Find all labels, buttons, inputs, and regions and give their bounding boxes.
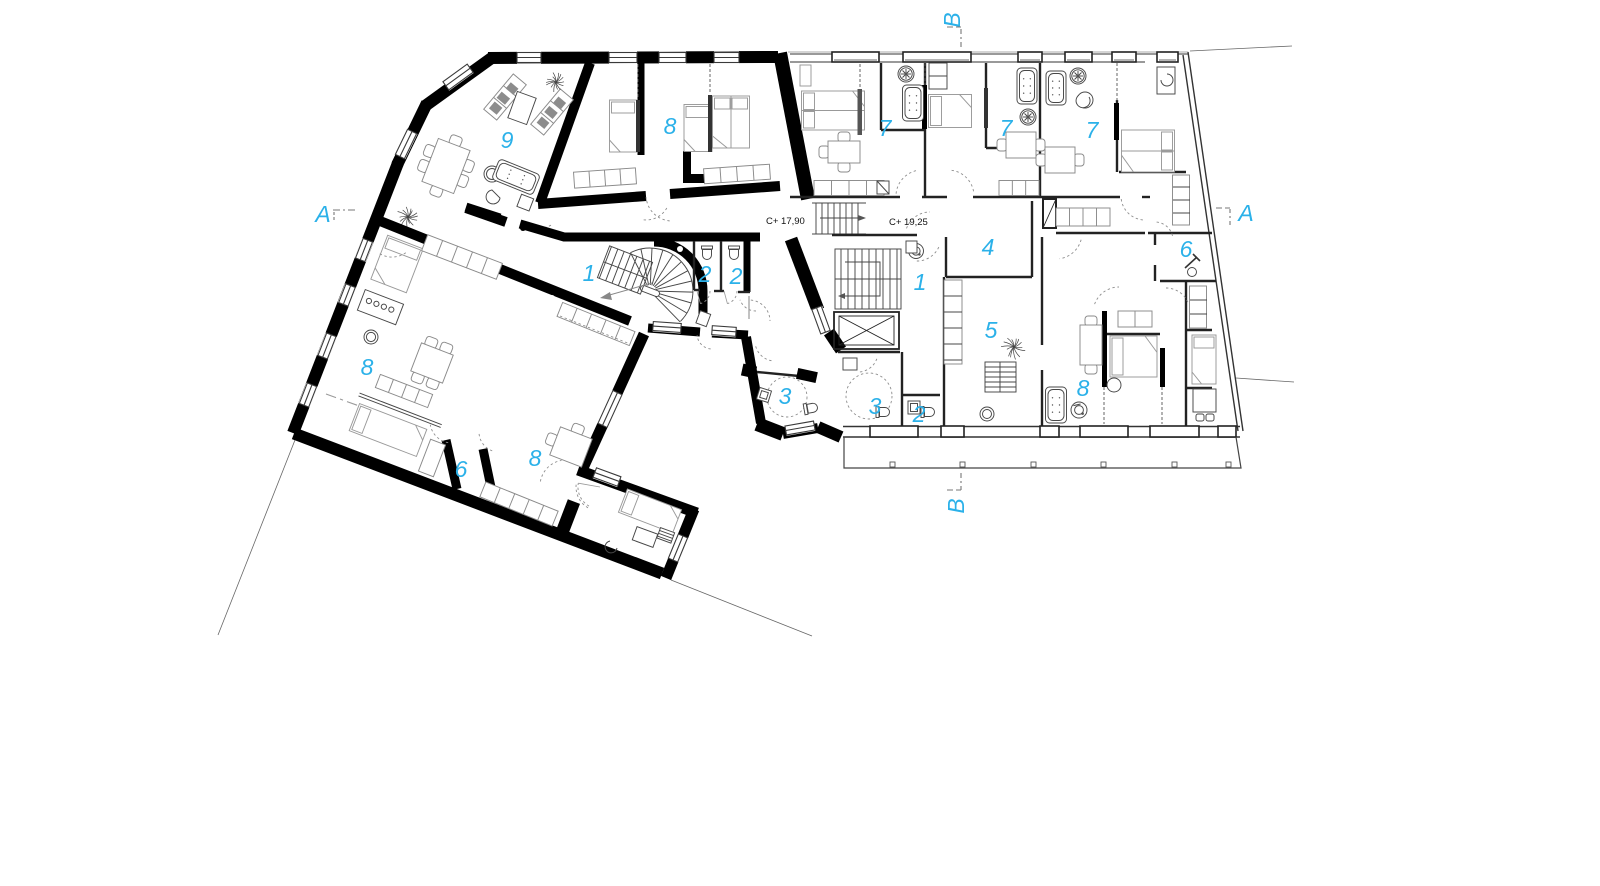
svg-text:1: 1 xyxy=(914,269,927,295)
svg-text:C+ 19,25: C+ 19,25 xyxy=(889,217,928,228)
svg-text:C+ 17,90: C+ 17,90 xyxy=(766,216,805,227)
svg-text:6: 6 xyxy=(455,456,468,482)
svg-text:1: 1 xyxy=(583,260,596,286)
svg-text:8: 8 xyxy=(664,113,677,139)
svg-text:3: 3 xyxy=(779,383,792,409)
svg-text:8: 8 xyxy=(529,445,542,471)
svg-text:8: 8 xyxy=(361,354,374,380)
svg-text:B: B xyxy=(943,498,969,513)
svg-text:9: 9 xyxy=(501,127,514,153)
svg-text:2: 2 xyxy=(729,263,743,289)
svg-text:7: 7 xyxy=(879,115,893,141)
svg-text:3: 3 xyxy=(869,393,882,419)
svg-text:6: 6 xyxy=(1180,236,1193,262)
svg-text:A: A xyxy=(1236,200,1253,226)
svg-text:2: 2 xyxy=(912,401,926,427)
svg-text:7: 7 xyxy=(1086,117,1100,143)
svg-text:8: 8 xyxy=(1077,375,1090,401)
svg-text:A: A xyxy=(313,201,330,227)
svg-text:B: B xyxy=(939,12,965,27)
svg-text:5: 5 xyxy=(985,317,998,343)
svg-text:4: 4 xyxy=(982,234,995,260)
svg-text:2: 2 xyxy=(698,261,712,287)
svg-text:7: 7 xyxy=(1000,115,1014,141)
